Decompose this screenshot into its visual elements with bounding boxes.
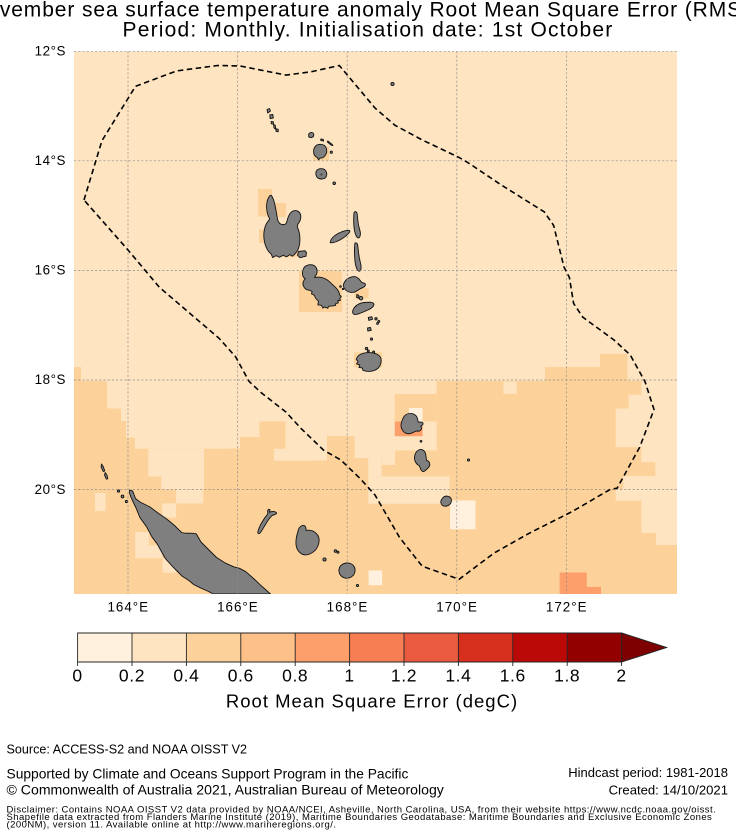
svg-text:Root Mean Square Error (degC): Root Mean Square Error (degC)	[226, 691, 518, 712]
svg-text:12°S: 12°S	[35, 43, 66, 58]
svg-text:Hindcast period: 1981-2018: Hindcast period: 1981-2018	[568, 765, 728, 780]
svg-text:172°E: 172°E	[546, 600, 588, 615]
svg-text:14°S: 14°S	[35, 153, 66, 168]
svg-text:(200NM), version 11. Available: (200NM), version 11. Available online at…	[7, 820, 337, 831]
svg-text:1.2: 1.2	[391, 666, 417, 686]
svg-text:16°S: 16°S	[35, 263, 66, 278]
svg-text:166°E: 166°E	[217, 600, 259, 615]
svg-text:1.4: 1.4	[445, 666, 471, 686]
svg-text:1: 1	[344, 666, 354, 686]
svg-text:1.8: 1.8	[554, 666, 580, 686]
svg-text:0.6: 0.6	[228, 666, 254, 686]
svg-text:0: 0	[72, 666, 82, 686]
svg-text:18°S: 18°S	[35, 372, 66, 387]
svg-text:0.2: 0.2	[119, 666, 145, 686]
svg-text:1.6: 1.6	[500, 666, 526, 686]
svg-text:0.8: 0.8	[282, 666, 308, 686]
svg-text:Source: ACCESS-S2 and NOAA OIS: Source: ACCESS-S2 and NOAA OISST V2	[7, 742, 248, 756]
svg-text:170°E: 170°E	[436, 600, 478, 615]
svg-text:164°E: 164°E	[107, 600, 149, 615]
svg-text:2: 2	[616, 666, 626, 686]
svg-text:Supported by Climate and Ocean: Supported by Climate and Oceans Support …	[7, 767, 409, 782]
svg-text:Period: Monthly. Initialisatio: Period: Monthly. Initialisation date: 1s…	[123, 19, 614, 42]
svg-text:© Commonwealth of Australia 20: © Commonwealth of Australia 2021, Austra…	[7, 782, 445, 798]
svg-text:Created: 14/10/2021: Created: 14/10/2021	[609, 783, 728, 798]
svg-text:20°S: 20°S	[35, 482, 66, 497]
svg-text:0.4: 0.4	[173, 666, 199, 686]
svg-text:168°E: 168°E	[327, 600, 369, 615]
